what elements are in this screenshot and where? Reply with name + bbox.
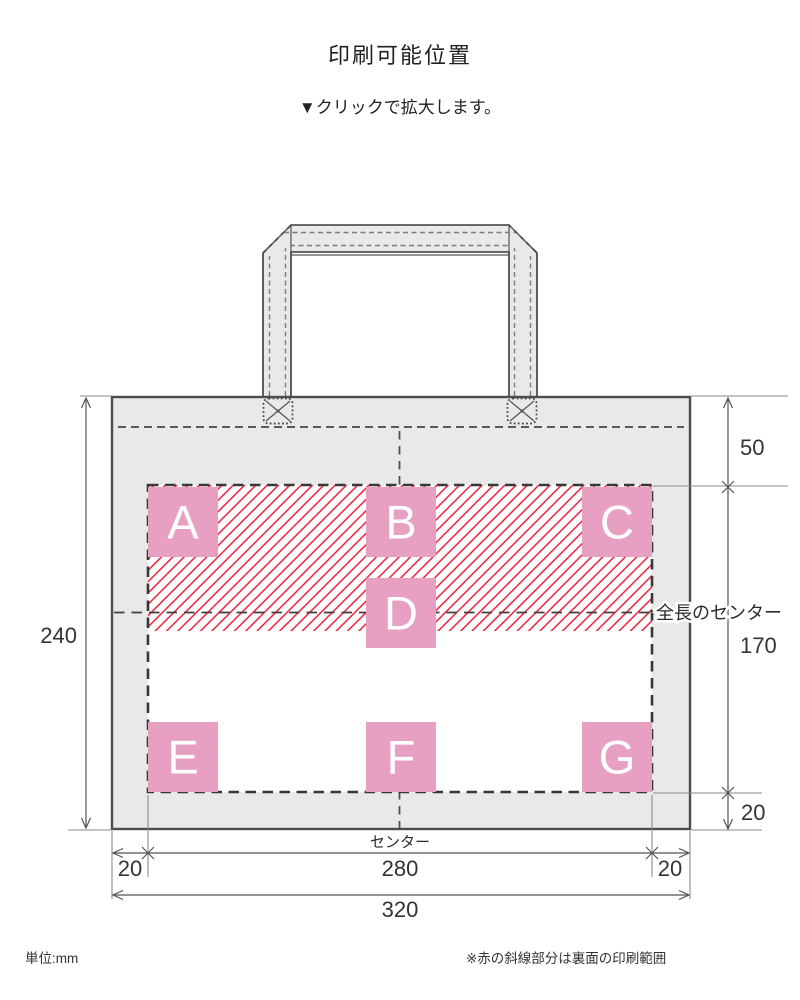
- svg-text:320: 320: [382, 897, 419, 922]
- print-position-f: F: [366, 722, 436, 792]
- handle-attachment-patch-left: [264, 399, 293, 424]
- dimension-bag-width: 320: [113, 891, 689, 923]
- svg-text:E: E: [167, 731, 198, 784]
- svg-text:F: F: [387, 731, 416, 784]
- svg-text:20: 20: [118, 856, 142, 881]
- svg-text:280: 280: [382, 856, 419, 881]
- svg-text:A: A: [167, 496, 199, 549]
- dimension-bottom-widths: センター 20 280 20: [113, 834, 689, 881]
- svg-text:240: 240: [40, 623, 77, 648]
- dimension-bag-height: 240: [40, 398, 90, 828]
- svg-text:C: C: [600, 496, 634, 549]
- bag-handle: [263, 225, 537, 398]
- hatch-note: ※赤の斜線部分は裏面の印刷範囲: [466, 951, 666, 966]
- handle-attachment-patch-right: [508, 399, 537, 424]
- print-position-a: A: [148, 487, 218, 557]
- print-position-e: E: [148, 722, 218, 792]
- unit-note: 単位:mm: [25, 951, 78, 966]
- print-position-b: B: [366, 487, 436, 557]
- svg-text:50: 50: [740, 435, 764, 460]
- click-to-enlarge-note[interactable]: ▼クリックで拡大します。: [299, 98, 501, 117]
- print-position-g: G: [582, 722, 652, 792]
- svg-text:B: B: [385, 496, 416, 549]
- print-position-page: 印刷可能位置 ▼クリックで拡大します。: [0, 0, 800, 1000]
- print-position-d: D: [366, 578, 436, 648]
- center-label: センター: [370, 834, 430, 851]
- svg-text:20: 20: [658, 856, 682, 881]
- full-length-center-label: 全長のセンター: [656, 603, 782, 623]
- svg-text:G: G: [599, 731, 636, 784]
- svg-text:20: 20: [741, 800, 765, 825]
- bag-print-position-diagram[interactable]: 印刷可能位置 ▼クリックで拡大します。: [0, 0, 800, 1000]
- page-title: 印刷可能位置: [328, 43, 472, 68]
- svg-text:170: 170: [740, 633, 777, 658]
- print-position-c: C: [582, 487, 652, 557]
- svg-text:D: D: [384, 587, 418, 640]
